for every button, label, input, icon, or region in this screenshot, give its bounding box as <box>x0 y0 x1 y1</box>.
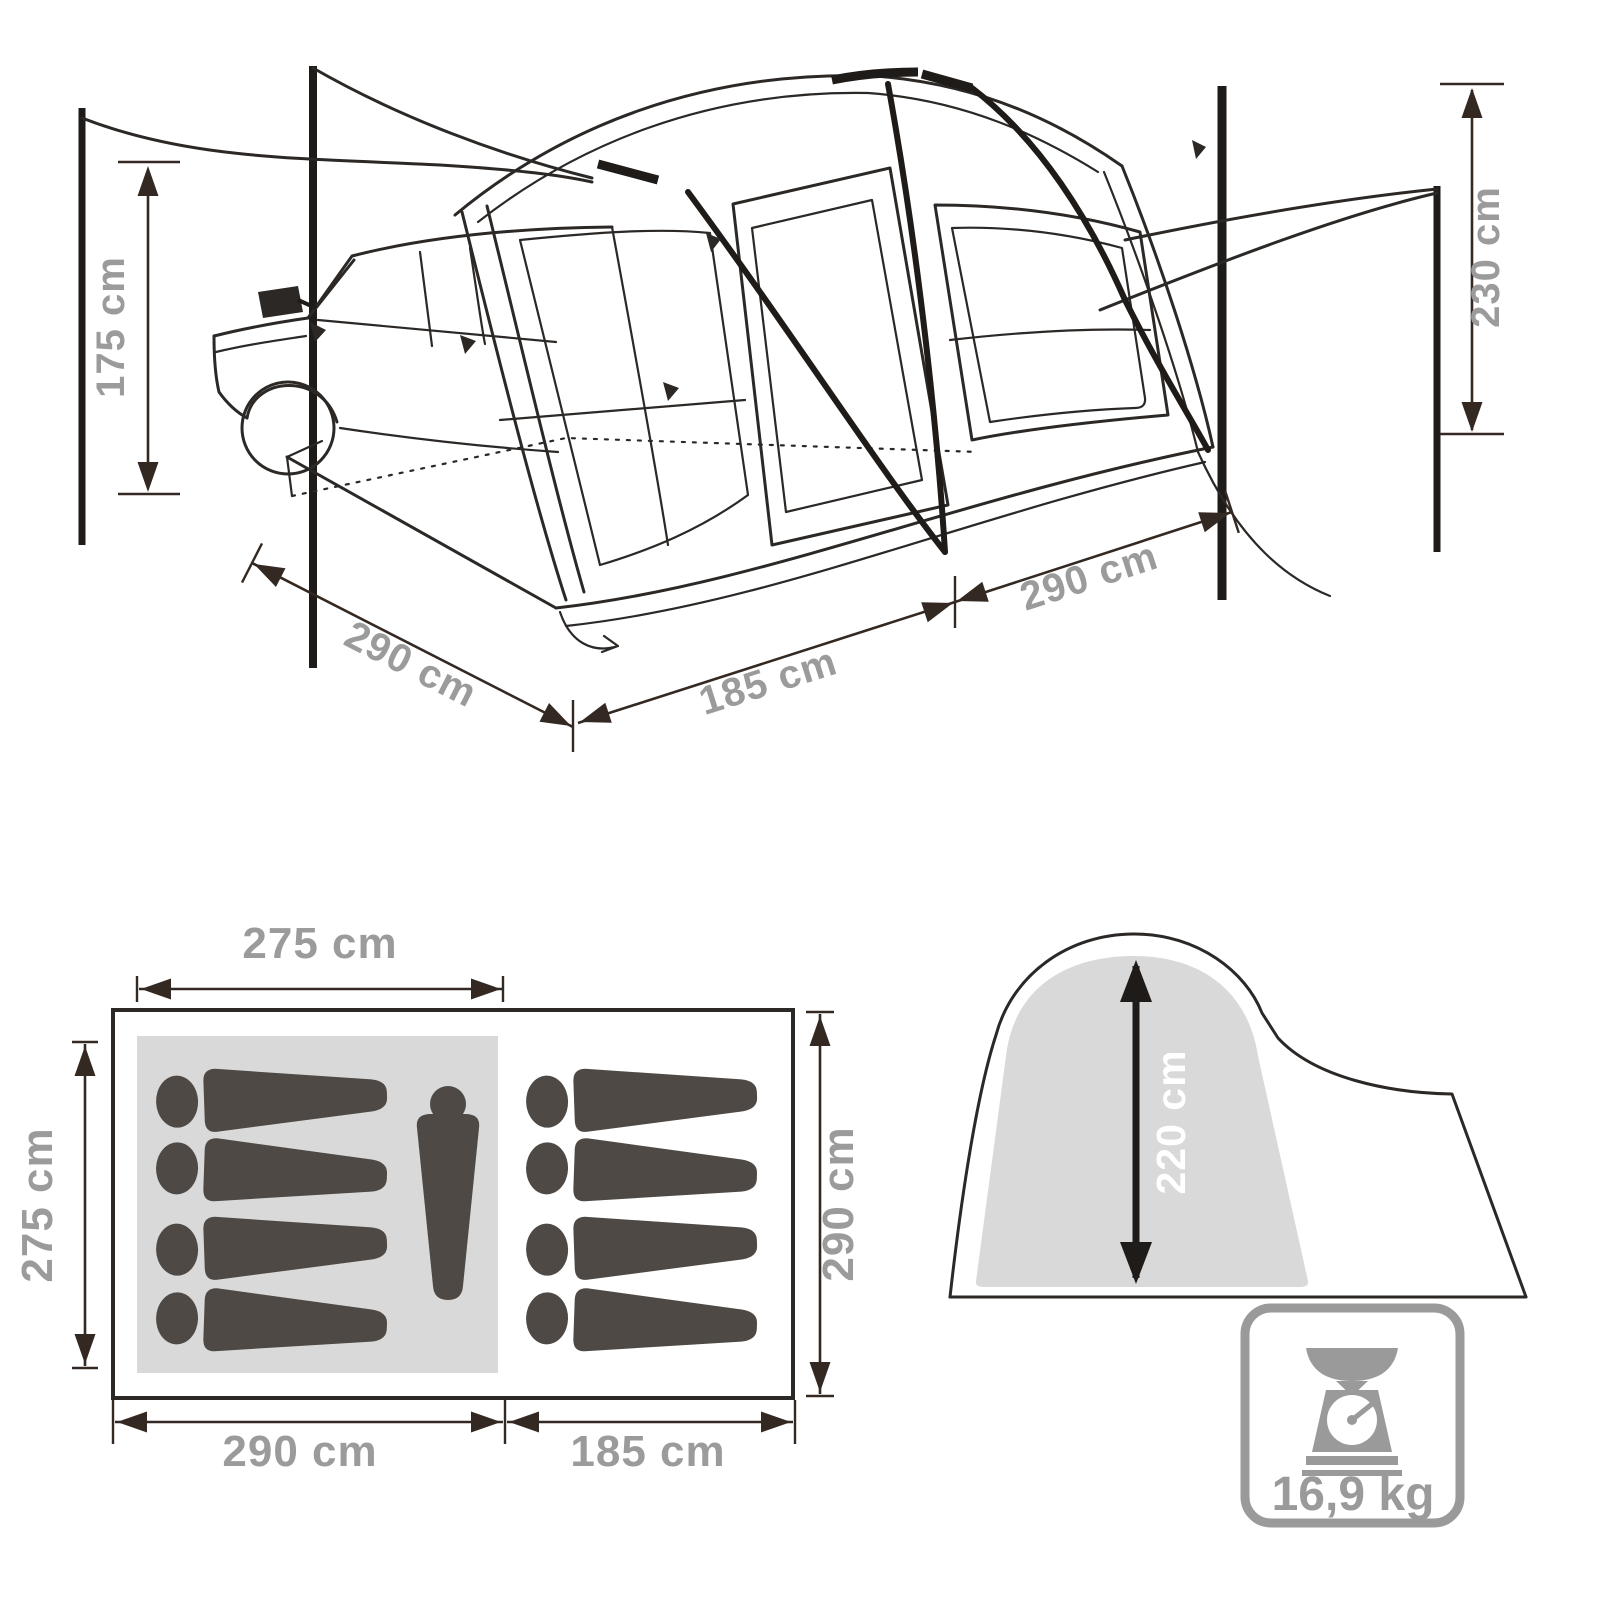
dim-label-230: 230 cm <box>1464 186 1508 328</box>
dimension-plan-top-width: 275 cm <box>137 919 503 1002</box>
dimension-plan-right-depth: 290 cm <box>806 1012 863 1396</box>
vehicle-outline <box>214 227 612 474</box>
dim-label-plan-290-bottom: 290 cm <box>222 1427 377 1476</box>
dim-label-185: 185 cm <box>694 639 842 724</box>
dimension-depth-left: 290 cm <box>242 543 576 752</box>
dimension-plan-bottom: 290 cm 185 cm <box>113 1400 795 1476</box>
perspective-view: 175 cm 230 cm 290 cm 185 cm <box>82 66 1508 752</box>
dimension-pole-height-left: 175 cm <box>89 162 180 494</box>
dim-label-290-left: 290 cm <box>338 613 484 717</box>
tarp-lines <box>82 68 1437 310</box>
dimension-plan-left-depth: 275 cm <box>13 1042 98 1368</box>
hem-curl <box>560 612 618 652</box>
groundsheet-dotted-line <box>292 438 978 496</box>
dimension-pole-height-right: 230 cm <box>1440 84 1508 434</box>
floor-plan: 275 cm 275 cm 290 cm 290 cm 185 c <box>13 919 863 1476</box>
dim-label-220: 220 cm <box>1148 1049 1194 1194</box>
dim-label-plan-275-left: 275 cm <box>13 1127 62 1282</box>
weight-value: 16,9 kg <box>1272 1468 1435 1521</box>
dim-label-290-right: 290 cm <box>1015 534 1163 620</box>
side-profile-view: 220 cm <box>950 934 1526 1297</box>
dimension-front-width: 185 cm <box>577 593 956 732</box>
dim-label-plan-185-bottom: 185 cm <box>570 1427 725 1476</box>
guy-ropes <box>460 72 1208 552</box>
tent-dimensions-diagram: 175 cm 230 cm 290 cm 185 cm <box>0 0 1600 1600</box>
weight-badge: 16,9 kg <box>1245 1308 1460 1523</box>
dim-label-plan-275-top: 275 cm <box>242 919 397 968</box>
dim-label-plan-290-right: 290 cm <box>814 1126 863 1281</box>
dim-label-175: 175 cm <box>89 256 133 398</box>
dimension-depth-right: 290 cm <box>954 491 1239 628</box>
